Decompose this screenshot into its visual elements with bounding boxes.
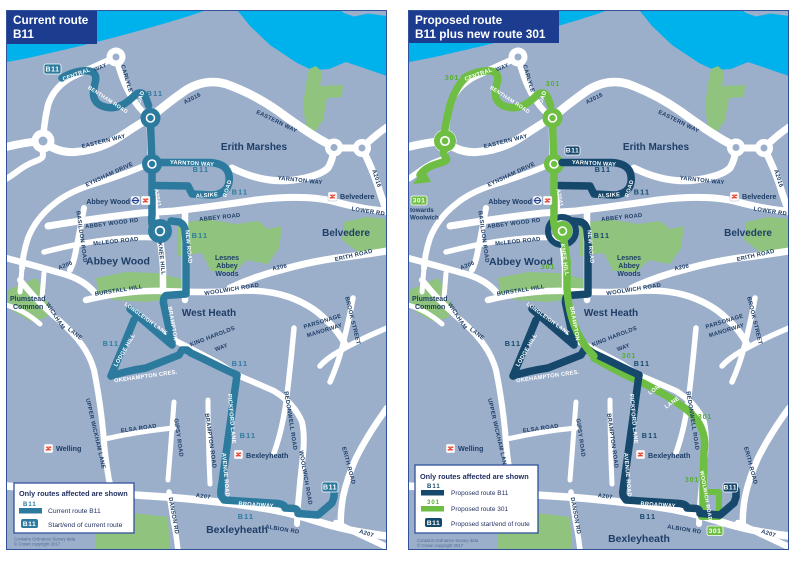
svg-text:Plumstead: Plumstead bbox=[10, 296, 45, 303]
svg-text:B11: B11 bbox=[427, 484, 441, 490]
svg-text:Common: Common bbox=[13, 304, 43, 311]
svg-text:Belvedere: Belvedere bbox=[322, 228, 370, 239]
svg-text:Bexleyheath: Bexleyheath bbox=[648, 451, 690, 460]
svg-text:Proposed start/end of route: Proposed start/end of route bbox=[451, 521, 530, 528]
svg-text:B11: B11 bbox=[193, 165, 209, 174]
svg-text:Belvedere: Belvedere bbox=[340, 192, 374, 201]
svg-text:Bexleyheath: Bexleyheath bbox=[206, 524, 268, 536]
svg-text:Bexleyheath: Bexleyheath bbox=[246, 451, 288, 460]
svg-text:B11: B11 bbox=[232, 359, 248, 368]
svg-text:Erith Marshes: Erith Marshes bbox=[623, 142, 690, 153]
svg-text:© Crown copyright 2017: © Crown copyright 2017 bbox=[14, 542, 61, 547]
svg-text:Woolwich: Woolwich bbox=[410, 215, 439, 222]
svg-text:West Heath: West Heath bbox=[584, 308, 638, 319]
svg-text:Proposed route: Proposed route bbox=[415, 13, 503, 27]
svg-text:301: 301 bbox=[541, 262, 555, 271]
svg-text:301: 301 bbox=[445, 73, 459, 82]
svg-text:B11: B11 bbox=[594, 231, 610, 240]
svg-text:B11: B11 bbox=[103, 339, 119, 348]
svg-text:Welling: Welling bbox=[458, 444, 483, 453]
svg-text:Lesnes: Lesnes bbox=[215, 255, 239, 262]
svg-text:B11: B11 bbox=[634, 188, 650, 197]
svg-text:Common: Common bbox=[415, 304, 445, 311]
svg-text:Abbey Wood: Abbey Wood bbox=[86, 256, 150, 268]
svg-text:Abbey Wood: Abbey Wood bbox=[86, 197, 130, 206]
svg-text:B11: B11 bbox=[723, 484, 737, 491]
svg-text:301: 301 bbox=[685, 475, 699, 484]
svg-text:Start/end of current route: Start/end of current route bbox=[48, 522, 123, 529]
svg-text:B11: B11 bbox=[427, 520, 441, 527]
svg-text:Bexleyheath: Bexleyheath bbox=[608, 533, 670, 545]
svg-text:301: 301 bbox=[698, 412, 712, 421]
svg-text:B11: B11 bbox=[13, 27, 34, 41]
svg-text:Belvedere: Belvedere bbox=[724, 228, 772, 239]
svg-text:B11: B11 bbox=[566, 147, 580, 154]
svg-text:B11: B11 bbox=[634, 359, 650, 368]
svg-text:© Crown copyright 2017: © Crown copyright 2017 bbox=[417, 543, 464, 548]
svg-text:B11: B11 bbox=[23, 521, 37, 528]
svg-text:B11: B11 bbox=[192, 231, 208, 240]
svg-text:West Heath: West Heath bbox=[182, 308, 236, 319]
svg-text:Current route B11: Current route B11 bbox=[48, 508, 101, 515]
svg-text:Only routes affected are shown: Only routes affected are shown bbox=[420, 472, 529, 481]
svg-text:B11: B11 bbox=[505, 339, 521, 348]
svg-text:B11: B11 bbox=[46, 66, 60, 73]
svg-text:B11: B11 bbox=[232, 188, 248, 197]
svg-text:B11 plus new route 301: B11 plus new route 301 bbox=[415, 27, 546, 41]
svg-text:Woods: Woods bbox=[617, 271, 640, 278]
svg-text:Only routes affected are shown: Only routes affected are shown bbox=[19, 489, 128, 498]
svg-text:Plumstead: Plumstead bbox=[412, 296, 447, 303]
svg-text:Current route: Current route bbox=[13, 13, 89, 27]
svg-text:Abbey: Abbey bbox=[216, 263, 238, 270]
svg-text:Erith Marshes: Erith Marshes bbox=[221, 142, 288, 153]
svg-text:Proposed route B11: Proposed route B11 bbox=[451, 490, 509, 497]
svg-text:Belvedere: Belvedere bbox=[742, 192, 776, 201]
svg-text:301: 301 bbox=[413, 197, 426, 204]
svg-text:B11: B11 bbox=[238, 512, 254, 521]
svg-text:B11: B11 bbox=[240, 431, 256, 440]
svg-text:301: 301 bbox=[709, 528, 722, 535]
svg-text:301: 301 bbox=[546, 79, 560, 88]
svg-text:B11: B11 bbox=[642, 431, 658, 440]
svg-text:Proposed route 301: Proposed route 301 bbox=[451, 506, 508, 513]
svg-text:Abbey Wood: Abbey Wood bbox=[488, 197, 532, 206]
svg-text:B11: B11 bbox=[640, 512, 656, 521]
svg-text:Woods: Woods bbox=[215, 271, 238, 278]
svg-text:B11: B11 bbox=[23, 502, 37, 508]
svg-text:301: 301 bbox=[427, 500, 440, 506]
svg-text:B11: B11 bbox=[147, 89, 163, 98]
svg-text:towards: towards bbox=[410, 207, 434, 214]
svg-text:301: 301 bbox=[622, 351, 636, 360]
svg-text:Welling: Welling bbox=[56, 444, 81, 453]
svg-text:B11: B11 bbox=[323, 484, 337, 491]
svg-text:Lesnes: Lesnes bbox=[617, 255, 641, 262]
svg-text:B11: B11 bbox=[595, 165, 611, 174]
svg-text:Abbey: Abbey bbox=[618, 263, 640, 270]
